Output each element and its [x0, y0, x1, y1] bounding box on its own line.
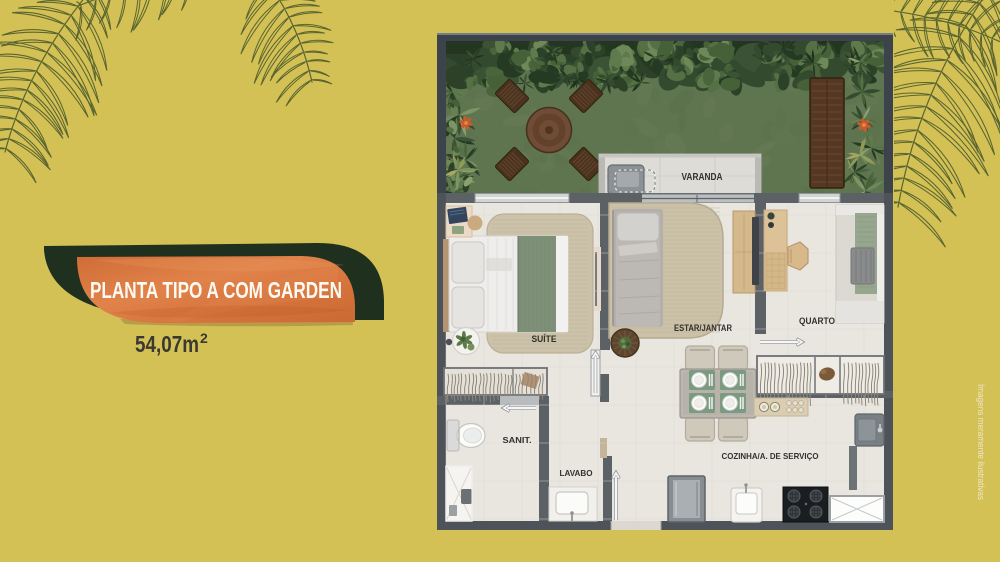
- svg-text:COZINHA/A. DE SERVIÇO: COZINHA/A. DE SERVIÇO: [722, 451, 819, 461]
- svg-text:2: 2: [200, 330, 208, 346]
- svg-text:Imagens meramente ilustrativas: Imagens meramente ilustrativas: [975, 384, 986, 500]
- svg-text:54,07m: 54,07m: [135, 331, 199, 357]
- svg-text:VARANDA: VARANDA: [682, 172, 723, 183]
- svg-text:SUÍTE: SUÍTE: [532, 334, 557, 344]
- svg-text:QUARTO: QUARTO: [799, 316, 835, 327]
- svg-text:PLANTA TIPO A COM GARDEN: PLANTA TIPO A COM GARDEN: [90, 277, 342, 303]
- svg-text:ESTAR/JANTAR: ESTAR/JANTAR: [674, 323, 732, 333]
- svg-text:SANIT.: SANIT.: [503, 435, 532, 445]
- svg-text:LAVABO: LAVABO: [560, 468, 593, 478]
